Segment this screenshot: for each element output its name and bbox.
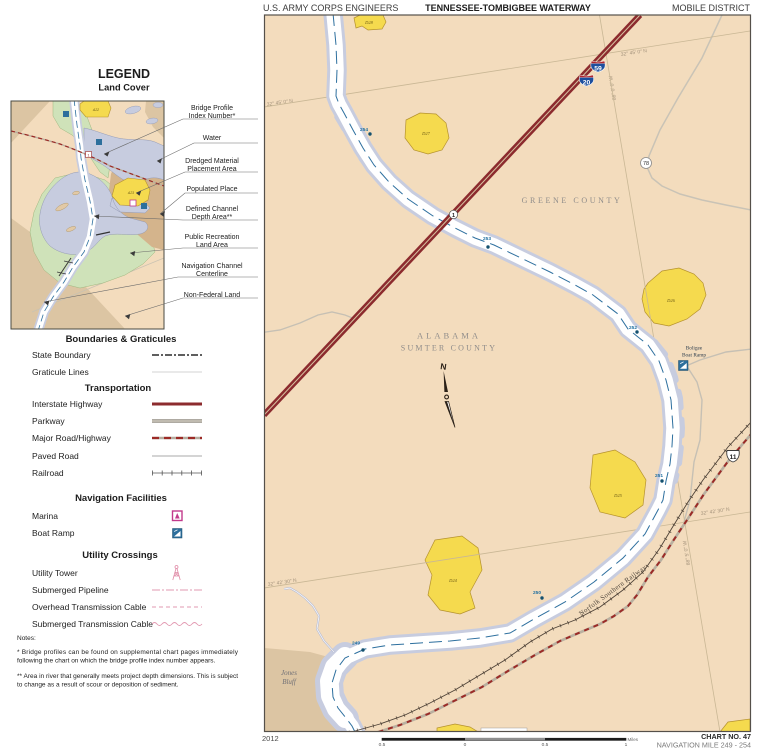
svg-text:Defined Channel: Defined Channel bbox=[186, 206, 239, 213]
svg-text:Parkway: Parkway bbox=[32, 416, 65, 426]
svg-text:Graticule Lines: Graticule Lines bbox=[32, 367, 89, 377]
svg-text:Transportation: Transportation bbox=[85, 383, 152, 394]
svg-text:Notes:: Notes: bbox=[17, 635, 36, 642]
svg-text:78: 78 bbox=[643, 161, 649, 167]
svg-text:* Bridge profiles can be found: * Bridge profiles can be found on supple… bbox=[17, 649, 239, 656]
svg-text:0: 0 bbox=[464, 742, 467, 748]
svg-text:2012: 2012 bbox=[262, 734, 279, 743]
svg-text:Land Cover: Land Cover bbox=[98, 83, 150, 93]
svg-text:0.5: 0.5 bbox=[379, 742, 386, 748]
svg-text:254: 254 bbox=[360, 127, 368, 133]
svg-text:Paved Road: Paved Road bbox=[32, 451, 79, 461]
svg-text:Depth Area**: Depth Area** bbox=[192, 214, 233, 221]
svg-text:Interstate Highway: Interstate Highway bbox=[32, 399, 103, 409]
svg-text:Navigation Facilities: Navigation Facilities bbox=[75, 493, 167, 504]
svg-text:Land Area: Land Area bbox=[196, 242, 228, 249]
svg-text:Boligee: Boligee bbox=[686, 346, 703, 352]
svg-text:Utility Tower: Utility Tower bbox=[32, 568, 78, 578]
svg-text:SCALE : 1" = 1500': SCALE : 1" = 1500' bbox=[485, 730, 524, 735]
svg-text:Utility Crossings: Utility Crossings bbox=[82, 550, 158, 561]
svg-text:A23: A23 bbox=[127, 191, 134, 195]
svg-text:1: 1 bbox=[625, 742, 628, 748]
svg-text:SUMTER COUNTY: SUMTER COUNTY bbox=[401, 344, 497, 353]
svg-text:Non-Federal Land: Non-Federal Land bbox=[184, 292, 241, 299]
svg-text:Navigation Channel: Navigation Channel bbox=[181, 263, 243, 270]
svg-text:Public Recreation: Public Recreation bbox=[185, 234, 240, 241]
svg-text:11: 11 bbox=[730, 454, 737, 461]
svg-text:State Boundary: State Boundary bbox=[32, 350, 91, 360]
svg-text:A22: A22 bbox=[92, 108, 99, 112]
svg-text:Placement Area: Placement Area bbox=[187, 166, 237, 173]
svg-text:Bridge Profile: Bridge Profile bbox=[191, 105, 233, 112]
svg-text:20: 20 bbox=[583, 80, 591, 87]
svg-text:D27: D27 bbox=[421, 131, 430, 136]
svg-text:Water: Water bbox=[203, 135, 222, 142]
svg-text:Boat Ramp: Boat Ramp bbox=[682, 353, 706, 359]
svg-text:MOBILE DISTRICT: MOBILE DISTRICT bbox=[672, 3, 751, 13]
svg-text:253: 253 bbox=[483, 236, 491, 242]
svg-text:Boundaries & Graticules: Boundaries & Graticules bbox=[66, 334, 177, 345]
svg-text:Major Road/Highway: Major Road/Highway bbox=[32, 433, 112, 443]
svg-text:Miles: Miles bbox=[628, 737, 639, 742]
svg-text:Bluff: Bluff bbox=[282, 678, 297, 686]
svg-text:to change as a result of scour: to change as a result of scour or deposi… bbox=[17, 682, 179, 689]
svg-text:** Area in river that generall: ** Area in river that generally meets pr… bbox=[17, 673, 238, 680]
svg-text:0.5: 0.5 bbox=[542, 742, 549, 748]
svg-text:Marina: Marina bbox=[32, 511, 58, 521]
svg-text:ALABAMA: ALABAMA bbox=[417, 331, 481, 341]
svg-text:Centerline: Centerline bbox=[196, 271, 228, 278]
svg-text:Submerged Pipeline: Submerged Pipeline bbox=[32, 585, 109, 595]
svg-text:LEGEND: LEGEND bbox=[98, 67, 150, 81]
svg-text:249: 249 bbox=[352, 641, 360, 647]
svg-text:59: 59 bbox=[594, 66, 602, 73]
svg-text:NAVIGATION MILE 249 - 254: NAVIGATION MILE 249 - 254 bbox=[657, 741, 751, 750]
svg-text:Railroad: Railroad bbox=[32, 468, 64, 478]
svg-text:TENNESSEE-TOMBIGBEE WATERWAY: TENNESSEE-TOMBIGBEE WATERWAY bbox=[425, 3, 591, 13]
svg-text:D25: D25 bbox=[613, 493, 622, 498]
svg-text:D26: D26 bbox=[666, 298, 675, 303]
svg-text:Populated Place: Populated Place bbox=[187, 186, 238, 193]
svg-text:Submerged Transmission Cable: Submerged Transmission Cable bbox=[32, 619, 153, 629]
svg-text:Index Number*: Index Number* bbox=[189, 113, 236, 120]
svg-text:following the chart on which t: following the chart on which the bridge … bbox=[17, 658, 216, 665]
svg-text:GREENE COUNTY: GREENE COUNTY bbox=[522, 196, 623, 205]
svg-text:Dredged Material: Dredged Material bbox=[185, 158, 239, 165]
svg-text:252: 252 bbox=[629, 325, 637, 331]
svg-text:D28: D28 bbox=[364, 20, 373, 25]
svg-text:Boat Ramp: Boat Ramp bbox=[32, 528, 75, 538]
svg-text:U.S. ARMY CORPS ENGINEERS: U.S. ARMY CORPS ENGINEERS bbox=[263, 3, 398, 13]
svg-text:D24: D24 bbox=[448, 578, 457, 583]
svg-text:Jones: Jones bbox=[281, 669, 297, 677]
svg-text:1: 1 bbox=[452, 213, 455, 219]
svg-text:250: 250 bbox=[533, 590, 541, 596]
svg-text:251: 251 bbox=[655, 473, 663, 479]
svg-text:Overhead Transmission Cable: Overhead Transmission Cable bbox=[32, 602, 147, 612]
